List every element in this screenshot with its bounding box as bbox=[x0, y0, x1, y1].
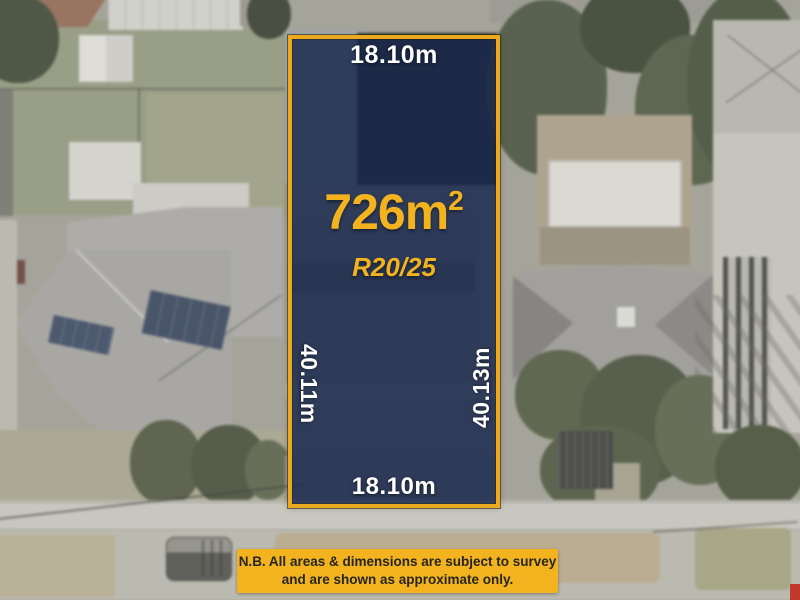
roof-ridge bbox=[75, 249, 168, 342]
area-superscript: 2 bbox=[448, 185, 464, 216]
tree-canopy bbox=[191, 425, 267, 505]
skylight bbox=[617, 307, 635, 327]
area-value: 726m bbox=[324, 184, 448, 240]
fence-line-vertical bbox=[138, 88, 140, 212]
caravan-ribs bbox=[195, 540, 228, 576]
tree-canopy bbox=[715, 425, 800, 510]
shrub bbox=[655, 375, 745, 485]
rear-lawn-left bbox=[0, 430, 287, 510]
tree-canopy bbox=[0, 0, 59, 83]
tree-canopy bbox=[245, 440, 291, 500]
far-right-courtyard bbox=[713, 133, 800, 433]
white-ribbed-roof bbox=[108, 0, 243, 30]
driveway-top-gray bbox=[240, 0, 285, 26]
disclaimer-line2: and are shown as approximate only. bbox=[237, 571, 558, 589]
shrub bbox=[540, 425, 660, 515]
dimension-right: 40.13m bbox=[468, 347, 495, 428]
kerb-line bbox=[653, 521, 798, 533]
dark-red-patch bbox=[0, 260, 25, 284]
tree-canopy bbox=[580, 0, 690, 73]
tree-canopy bbox=[130, 420, 202, 505]
garden-path bbox=[595, 463, 640, 535]
patio-paving bbox=[537, 115, 692, 265]
side-driveway-shadow bbox=[0, 90, 13, 216]
garden-shed bbox=[79, 35, 133, 82]
dimension-top: 18.10m bbox=[350, 41, 438, 70]
watermark-fragment bbox=[790, 584, 800, 600]
swimming-pool bbox=[548, 160, 682, 228]
property-aerial-view: 18.10m 726m2 R20/25 40.11m 40.13m 18.10m… bbox=[0, 0, 800, 600]
pool-deck-shadow bbox=[540, 227, 690, 265]
tree-canopy bbox=[635, 35, 750, 185]
right-roof-hip-shade bbox=[513, 267, 573, 379]
zoning-label: R20/25 bbox=[292, 252, 496, 283]
disclaimer-banner: N.B. All areas & dimensions are subject … bbox=[237, 549, 558, 593]
solar-panels bbox=[48, 315, 114, 355]
front-lawn-left bbox=[0, 20, 287, 215]
roof-ridge bbox=[725, 45, 800, 104]
left-house-roof-upper bbox=[67, 207, 283, 337]
dark-pergola bbox=[558, 431, 613, 489]
driveway-top-right bbox=[490, 0, 725, 23]
far-right-roof bbox=[713, 20, 800, 135]
carport-roof bbox=[69, 142, 141, 200]
left-house-roof-lower bbox=[15, 250, 231, 435]
shrub bbox=[515, 350, 605, 440]
fence-slats bbox=[723, 257, 771, 429]
palm-shadow bbox=[695, 295, 800, 435]
front-lawn-left-light bbox=[147, 93, 285, 211]
area-label: 726m2 bbox=[292, 183, 496, 241]
driveway-left-edge bbox=[0, 220, 17, 435]
right-roof-hip-shade bbox=[655, 271, 717, 379]
shrub bbox=[580, 355, 700, 485]
roof-ridge bbox=[727, 34, 800, 97]
garage-roof-white bbox=[133, 183, 249, 245]
road-patch bbox=[0, 535, 115, 597]
lot-boundary: 18.10m 726m2 R20/25 40.11m 40.13m 18.10m bbox=[288, 35, 500, 508]
fence-line-horizontal bbox=[0, 88, 285, 90]
parked-caravan bbox=[166, 537, 232, 581]
roof-valley bbox=[158, 294, 282, 382]
verge-grass-right bbox=[695, 528, 791, 590]
terracotta-roof bbox=[0, 0, 113, 27]
tree-canopy bbox=[687, 0, 800, 179]
right-house-roof bbox=[511, 265, 719, 383]
solar-panels bbox=[141, 290, 230, 350]
tree-canopy bbox=[487, 0, 607, 175]
tree-canopy bbox=[247, 0, 291, 39]
power-line bbox=[0, 483, 303, 521]
dimension-bottom: 18.10m bbox=[352, 473, 436, 501]
dimension-left: 40.11m bbox=[295, 344, 322, 424]
disclaimer-line1: N.B. All areas & dimensions are subject … bbox=[237, 553, 558, 571]
